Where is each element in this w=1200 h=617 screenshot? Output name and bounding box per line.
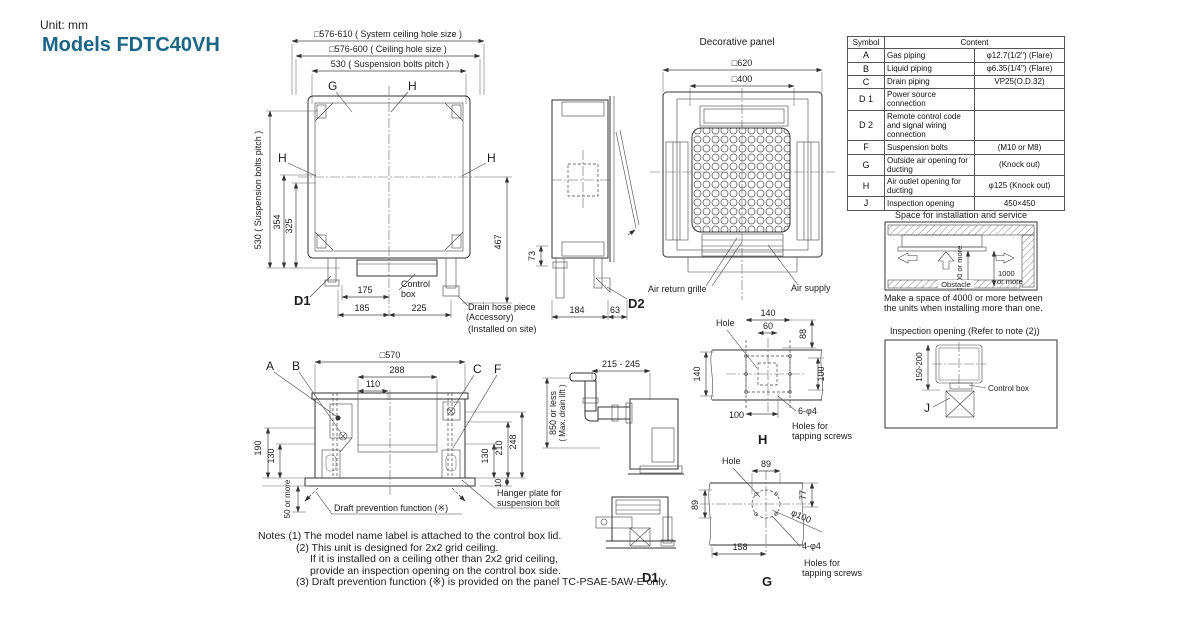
value-cell: φ6.35(1/4") (Flare) xyxy=(975,62,1065,75)
dim-label-110: 110 xyxy=(366,379,380,389)
dim-label-850: 850 or less xyxy=(548,390,558,435)
h-dim-100-right: 100 xyxy=(816,366,826,381)
value-cell: φ12.7(1/2") (Flare) xyxy=(975,49,1065,62)
symbol-cell: A xyxy=(848,49,885,62)
g-screws-label-2: tapping screws xyxy=(802,568,863,578)
notes-row-1: Notes (1) The model name label is attach… xyxy=(258,531,668,543)
table-row: D 2 Remote control code and signal wirin… xyxy=(848,110,1065,141)
table-row: A Gas piping φ12.7(1/2") (Flare) xyxy=(848,49,1065,62)
top-view-drawing: □576-610 ( System ceiling hole size ) □5… xyxy=(253,29,548,334)
desc-cell: Inspection opening xyxy=(885,197,975,210)
side-view-drawing: D2 184 63 xyxy=(552,96,645,320)
decorative-panel-drawing: Decorative panel □620 □400 xyxy=(648,37,835,300)
note-line-5: (3) Draft prevention function (※) is pro… xyxy=(296,577,668,589)
value-cell: φ125 (Knock out) xyxy=(975,175,1065,196)
dim-label-400: □400 xyxy=(732,74,752,84)
desc-cell: Outside air opening for ducting xyxy=(885,154,975,175)
view-ref-h-top: H xyxy=(408,79,417,93)
g-view-drawing: Hole 89 77 89 φ100 158 xyxy=(690,456,863,589)
table-row: C Drain piping VP25(O.D.32) xyxy=(848,75,1065,88)
symbol-cell: D 1 xyxy=(848,89,885,110)
hanger-plate-label-1: Hanger plate for xyxy=(497,488,562,498)
dim-label-63: 63 xyxy=(610,305,620,315)
air-return-grille-label: Air return grille xyxy=(648,284,707,294)
dim-label-325: 325 xyxy=(284,218,294,233)
note-line-1: (1) The model name label is attached to … xyxy=(288,530,561,542)
value-cell xyxy=(975,89,1065,110)
dim-label-73: 73 xyxy=(527,251,537,261)
h-hole-label: Hole xyxy=(716,318,735,328)
g-screws-label-1: Holes for xyxy=(804,558,840,568)
value-cell: (M10 or M8) xyxy=(975,141,1065,154)
air-supply-label: Air supply xyxy=(791,283,831,293)
table-row: D 1 Power source connection xyxy=(848,89,1065,110)
dim-label-184: 184 xyxy=(569,305,584,315)
symbol-cell: D 2 xyxy=(848,110,885,141)
g-dim-158: 158 xyxy=(732,542,747,552)
symbol-cell: F xyxy=(848,141,885,154)
table-row: F Suspension bolts (M10 or M8) xyxy=(848,141,1065,154)
desc-cell: Drain piping xyxy=(885,75,975,88)
dim-label-system-ceiling-hole: □576-610 ( System ceiling hole size ) xyxy=(314,29,462,39)
conn-ref-d1: D1 xyxy=(294,293,311,308)
notes: Notes (1) The model name label is attach… xyxy=(258,531,668,589)
view-ref-g: G xyxy=(328,79,337,93)
hanger-plate-label-2: suspension bolt xyxy=(497,498,560,508)
h-view-drawing: Hole 140 60 88 140 xyxy=(692,308,853,447)
h-dim-88: 88 xyxy=(798,329,808,339)
g-hole-label: Hole xyxy=(722,456,741,466)
conn-ref-b: B xyxy=(292,359,300,373)
arrow-left-icon xyxy=(898,253,917,263)
symbol-table-header-symbol: Symbol xyxy=(848,37,885,49)
view-ref-h-right: H xyxy=(487,151,496,165)
arrow-up-icon xyxy=(938,252,954,269)
dim-label-130-left: 130 xyxy=(266,448,276,463)
decorative-panel-title: Decorative panel xyxy=(699,37,774,48)
conn-ref-c: C xyxy=(473,362,482,376)
dim-label-570: □570 xyxy=(380,350,400,360)
value-cell: (Knock out) xyxy=(975,154,1065,175)
g-dim-89-left: 89 xyxy=(690,500,700,510)
symbol-table-header-content: Content xyxy=(885,37,1065,49)
value-cell xyxy=(975,110,1065,141)
inspection-title: Inspection opening (Refer to note (2)) xyxy=(890,326,1040,336)
view-ref-h-left: H xyxy=(278,151,287,165)
dim-label-50-or-more: 50 or more xyxy=(283,479,292,518)
dim-label-215-245: 215 - 245 xyxy=(602,359,640,369)
symbol-table: Symbol Content A Gas piping φ12.7(1/2") … xyxy=(847,36,1065,211)
dim-label-210: 210 xyxy=(494,440,504,455)
dim-label-190: 190 xyxy=(253,440,263,455)
dim-label-130-right: 130 xyxy=(480,448,490,463)
control-box-label-2: box xyxy=(401,289,416,299)
h-screws-count-label: 6-φ4 xyxy=(798,406,817,416)
draft-prevention-label: Draft prevention function (※) xyxy=(334,503,448,513)
h-dim-140-top: 140 xyxy=(760,308,775,318)
dim-label-620: □620 xyxy=(732,58,752,68)
table-row: J Inspection opening 450×450 xyxy=(848,197,1065,210)
dim-label-467: 467 xyxy=(493,234,503,249)
inspection-control-box-label: Control box xyxy=(988,384,1029,393)
desc-cell: Gas piping xyxy=(885,49,975,62)
view-label-g: G xyxy=(762,574,772,589)
symbol-cell: J xyxy=(848,197,885,210)
inspection-diagram: Inspection opening (Refer to note (2)) 1… xyxy=(885,326,1057,428)
page-title: Models FDTC40VH xyxy=(42,34,220,57)
symbol-cell: B xyxy=(848,62,885,75)
space-caption-2: the units when installing more than one. xyxy=(884,303,1043,313)
desc-cell: Liquid piping xyxy=(885,62,975,75)
view-label-h: H xyxy=(758,432,767,447)
g-screws-count-label: 4-φ4 xyxy=(802,541,821,551)
symbol-table-header: Symbol Content xyxy=(848,37,1065,49)
desc-cell: Remote control code and signal wiring co… xyxy=(885,110,975,141)
h-screws-label-2: tapping screws xyxy=(792,431,853,441)
dim-label-185: 185 xyxy=(354,303,369,313)
notes-label: Notes xyxy=(258,530,285,542)
h-dim-140-left: 140 xyxy=(692,366,702,381)
conn-ref-f: F xyxy=(494,362,501,376)
h-screws-label-1: Holes for xyxy=(792,421,828,431)
symbol-cell: H xyxy=(848,175,885,196)
dim-label-175: 175 xyxy=(357,285,372,295)
h-dim-60: 60 xyxy=(763,321,773,331)
table-row: B Liquid piping φ6.35(1/4") (Flare) xyxy=(848,62,1065,75)
dim-label-248: 248 xyxy=(508,434,518,449)
dim-label-pitch-v: 530 ( Suspension bolts pitch ) xyxy=(253,131,263,250)
g-dim-77: 77 xyxy=(798,490,808,500)
dim-label-225: 225 xyxy=(411,303,426,313)
value-cell: VP25(O.D.32) xyxy=(975,75,1065,88)
g-dim-89-top: 89 xyxy=(761,459,771,469)
conn-ref-d2: D2 xyxy=(628,296,645,311)
drawing-sheet: Unit: mm Models FDTC40VH □576-610 ( Syst… xyxy=(0,0,1200,617)
bottom-view-drawing: □570 288 110 A B C F xyxy=(253,350,562,518)
h-dim-100-bottom: 100 xyxy=(729,410,744,420)
drain-hose-label-2: (Accessory) xyxy=(466,312,514,322)
arrow-right-icon xyxy=(996,253,1014,263)
symbol-cell: G xyxy=(848,154,885,175)
desc-cell: Suspension bolts xyxy=(885,141,975,154)
dim-label-288: 288 xyxy=(389,365,404,375)
symbol-cell: C xyxy=(848,75,885,88)
desc-cell: Air outlet opening for ducting xyxy=(885,175,975,196)
dim-label-ceiling-hole: □576-600 ( Ceiling hole size ) xyxy=(329,44,447,54)
dim-label-max-drain-lift: ( Max. drain lift ) xyxy=(558,384,567,442)
table-row: G Outside air opening for ducting (Knock… xyxy=(848,154,1065,175)
table-row: H Air outlet opening for ducting φ125 (K… xyxy=(848,175,1065,196)
drain-lift-drawing: 215 - 245 850 or less ( Max. drain lift … xyxy=(542,359,684,474)
g-dim-phi100: φ100 xyxy=(790,507,813,525)
space-title: Space for installation and service xyxy=(895,210,1027,220)
dim-label-354: 354 xyxy=(272,214,282,229)
drain-hose-label-1: Drain hose piece xyxy=(468,302,536,312)
conn-ref-a: A xyxy=(266,359,274,373)
inspection-dim-150-200: 150-200 xyxy=(915,352,924,382)
inspection-ref-j: J xyxy=(924,401,930,415)
drain-hose-label-3: (Installed on site) xyxy=(468,324,537,334)
unit-label: Unit: mm xyxy=(40,18,88,32)
desc-cell: Power source connection xyxy=(885,89,975,110)
value-cell: 450×450 xyxy=(975,197,1065,210)
dim-label-pitch-h: 530 ( Suspension bolts pitch ) xyxy=(331,59,450,69)
space-diagram: Space for installation and service 1000 … xyxy=(884,210,1043,313)
space-caption-1: Make a space of 4000 or more between xyxy=(884,293,1043,303)
obstacle-label: Obstacle xyxy=(941,280,971,289)
